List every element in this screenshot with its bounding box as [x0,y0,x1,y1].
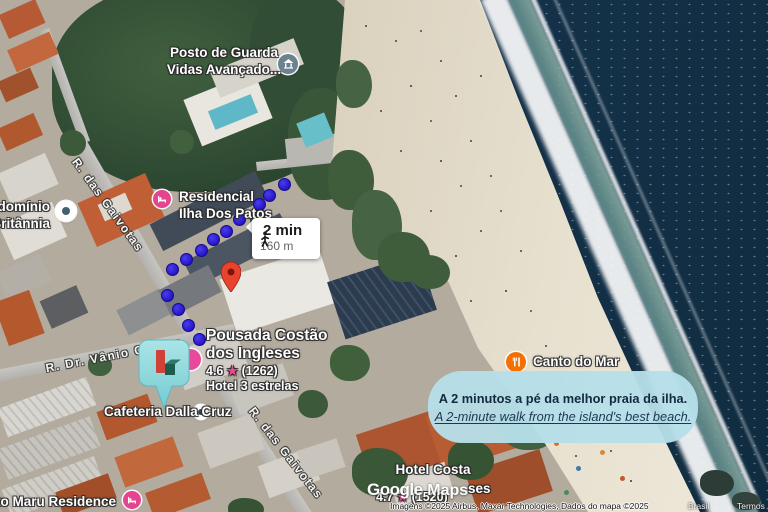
route-dot [207,233,220,246]
map-canvas[interactable]: R. das Gaivotas R. Dr. Vânio Colaço R. d… [0,0,768,512]
route-dot [193,333,206,346]
poi-label-britannia[interactable]: ndomínio Britânnia [0,198,50,232]
beach-goers [365,25,367,27]
google-maps-watermark: Google Maps [367,480,468,500]
poi-label-misato[interactable]: sato Maru Residence [0,493,116,510]
poi-label-pousada[interactable]: Pousada Costão dos Ingleses 4.6 ★ (1262)… [206,327,327,394]
poi-label-hotel-costa[interactable]: Hotel Costa [363,461,503,478]
shore-rocks [700,470,734,496]
restaurant-icon[interactable] [506,352,526,372]
google-logo: Google [367,480,423,499]
route-dot [220,225,233,238]
walking-time-badge[interactable]: 2 min 160 m [252,218,320,259]
route-dot [182,319,195,332]
route-dot [195,244,208,257]
poi-label-posto[interactable]: Posto de Guarda Vidas Avançado... [149,44,299,78]
imagery-attribution: Imagens ©2025 Airbus, Maxar Technologies… [390,501,649,511]
route-dot [161,289,174,302]
lodging-icon[interactable] [153,190,171,208]
star-icon: ★ [227,364,238,378]
poi-label-hotel-costa-fragment: ses [468,480,491,497]
annotation-bubble: A 2 minutos a pé da melhor praia da ilha… [428,371,698,443]
route-dot [172,303,185,316]
lodging-icon[interactable] [123,491,141,509]
route-dot [166,263,179,276]
attribution-terms-link[interactable]: Termos [737,501,765,511]
poi-label-canto-do-mar[interactable]: Canto do Mar [533,353,619,370]
poi-label-residencial[interactable]: Residencial Ilha Dos Patos [179,188,272,222]
generic-place-icon[interactable] [56,201,76,221]
annotation-text-pt: A 2 minutos a pé da melhor praia da ilha… [439,391,687,406]
annotation-text-en: A 2-minute walk from the island's best b… [435,409,692,424]
attribution-region: Brasil [688,501,709,511]
route-dot [180,253,193,266]
route-dot [278,178,291,191]
